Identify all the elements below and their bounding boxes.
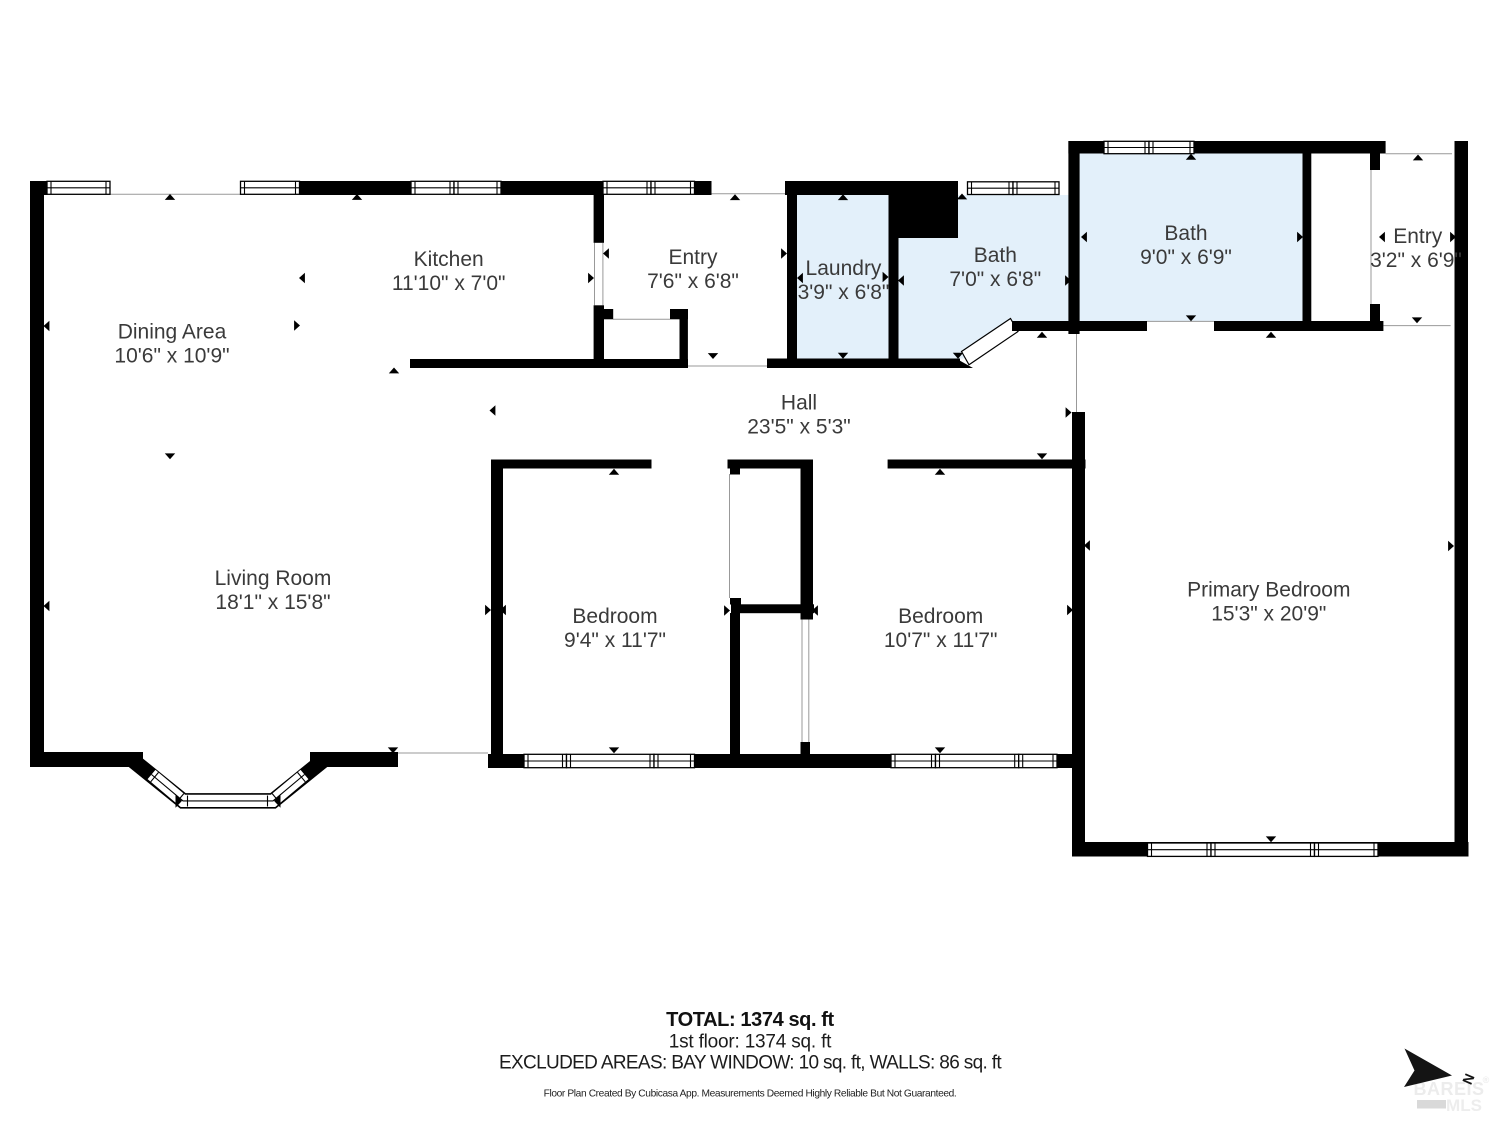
svg-text:10'6" x 10'9": 10'6" x 10'9": [114, 344, 229, 367]
svg-text:9'4" x 11'7": 9'4" x 11'7": [564, 629, 666, 652]
svg-text:3'9" x 6'8": 3'9" x 6'8": [798, 281, 890, 304]
svg-text:Floor Plan Created By Cubicasa: Floor Plan Created By Cubicasa App. Meas…: [544, 1089, 957, 1100]
svg-text:Bedroom: Bedroom: [898, 605, 983, 628]
svg-text:3'2" x 6'9": 3'2" x 6'9": [1370, 249, 1462, 272]
svg-text:7'0" x 6'8": 7'0" x 6'8": [949, 268, 1041, 291]
svg-text:Kitchen: Kitchen: [414, 248, 484, 271]
svg-text:Bedroom: Bedroom: [572, 605, 657, 628]
svg-text:23'5" x 5'3": 23'5" x 5'3": [747, 415, 851, 438]
svg-text:Laundry: Laundry: [806, 257, 882, 280]
svg-text:EXCLUDED AREAS: BAY WINDOW: 10: EXCLUDED AREAS: BAY WINDOW: 10 sq. ft, W…: [499, 1053, 1002, 1074]
svg-text:1st floor: 1374 sq. ft: 1st floor: 1374 sq. ft: [669, 1032, 832, 1053]
svg-text:Entry: Entry: [1393, 225, 1443, 248]
svg-text:Bath: Bath: [974, 244, 1017, 267]
svg-text:15'3" x 20'9": 15'3" x 20'9": [1211, 602, 1326, 625]
svg-text:®: ®: [1483, 1075, 1490, 1085]
svg-text:18'1" x 15'8": 18'1" x 15'8": [215, 591, 330, 614]
svg-text:Bath: Bath: [1164, 222, 1207, 245]
svg-text:10'7" x 11'7": 10'7" x 11'7": [884, 629, 998, 652]
svg-text:TOTAL: 1374 sq. ft: TOTAL: 1374 sq. ft: [666, 1009, 834, 1031]
svg-text:Dining Area: Dining Area: [118, 320, 227, 343]
svg-text:Entry: Entry: [668, 246, 718, 269]
svg-text:Hall: Hall: [781, 391, 817, 414]
svg-text:11'10" x 7'0": 11'10" x 7'0": [392, 272, 506, 295]
svg-text:Primary Bedroom: Primary Bedroom: [1187, 578, 1350, 601]
svg-text:MLS: MLS: [1446, 1096, 1482, 1115]
svg-text:9'0" x 6'9": 9'0" x 6'9": [1140, 246, 1232, 269]
svg-text:7'6" x 6'8": 7'6" x 6'8": [647, 270, 739, 293]
svg-text:Living Room: Living Room: [215, 567, 332, 590]
